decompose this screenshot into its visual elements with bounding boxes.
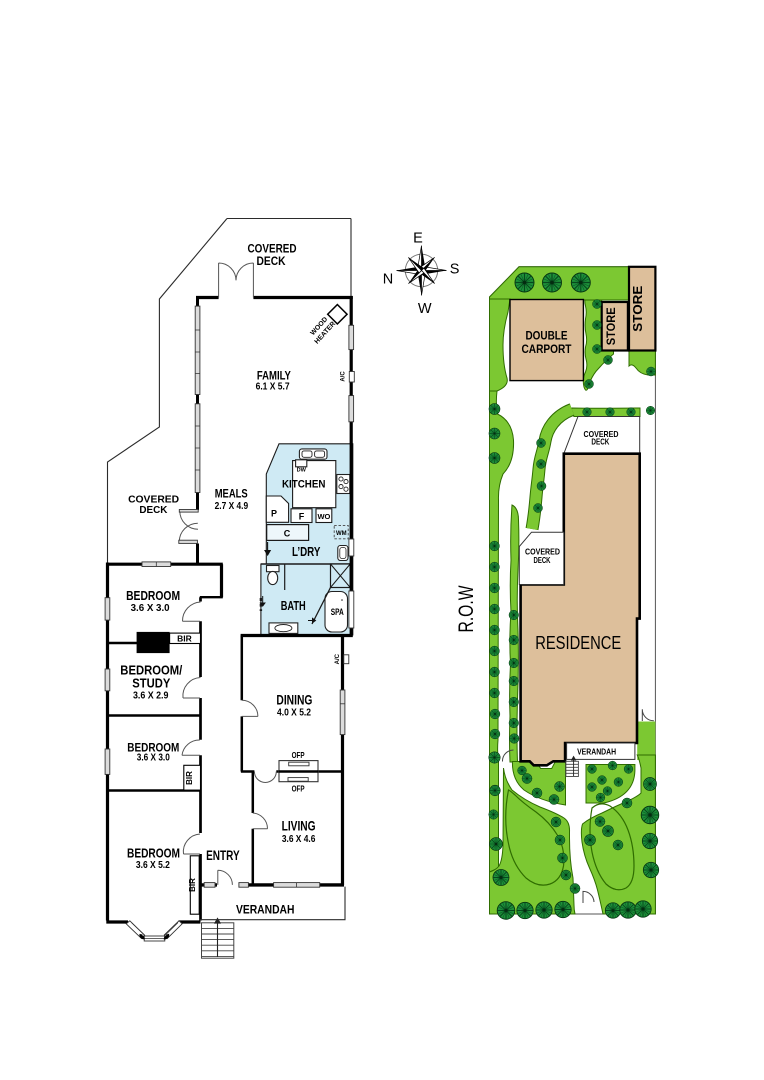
svg-text:4.0 X 5.2: 4.0 X 5.2 (277, 707, 311, 718)
svg-text:OFP: OFP (292, 751, 305, 760)
svg-text:OFP: OFP (292, 784, 305, 793)
svg-text:2.7 X 4.9: 2.7 X 4.9 (215, 501, 249, 512)
svg-text:WO: WO (317, 512, 330, 521)
svg-text:C: C (284, 529, 291, 539)
svg-text:F: F (299, 512, 305, 522)
svg-text:BIR: BIR (188, 878, 197, 892)
svg-text:3.6 X 2.9: 3.6 X 2.9 (133, 690, 169, 701)
svg-text:CARPORT: CARPORT (522, 344, 572, 356)
svg-text:COVERED: COVERED (128, 494, 179, 505)
svg-text:3.6 X 5.2: 3.6 X 5.2 (136, 860, 170, 871)
svg-text:A/C: A/C (335, 653, 341, 664)
svg-text:A/C: A/C (341, 371, 347, 382)
svg-text:STORE: STORE (604, 307, 618, 345)
svg-text:SPA: SPA (331, 607, 344, 617)
svg-text:L’DRY: L’DRY (292, 545, 321, 559)
svg-text:BIR: BIR (177, 634, 192, 644)
svg-text:DW: DW (297, 468, 307, 474)
svg-text:WM: WM (336, 531, 347, 537)
svg-text:N: N (383, 271, 393, 287)
svg-text:P: P (271, 509, 277, 519)
svg-text:E: E (413, 230, 423, 246)
svg-text:DECK: DECK (139, 505, 167, 516)
svg-text:KITCHEN: KITCHEN (282, 479, 326, 491)
svg-text:COVERED: COVERED (248, 243, 297, 256)
svg-text:3.6 X 3.0: 3.6 X 3.0 (137, 752, 170, 763)
svg-text:RESIDENCE: RESIDENCE (535, 633, 621, 653)
svg-text:BEDROOM: BEDROOM (126, 588, 180, 603)
svg-text:FAMILY: FAMILY (257, 368, 292, 382)
svg-text:S: S (450, 261, 460, 277)
svg-text:DINING: DINING (276, 693, 312, 708)
svg-text:BIR: BIR (185, 771, 194, 785)
svg-text:STORE: STORE (630, 285, 645, 331)
svg-text:VERANDAH: VERANDAH (577, 748, 616, 757)
svg-text:3.6 X 3.0: 3.6 X 3.0 (131, 603, 170, 614)
svg-text:DECK: DECK (257, 255, 286, 268)
svg-text:DECK: DECK (591, 438, 609, 447)
svg-text:LIVING: LIVING (282, 819, 316, 834)
svg-text:VERANDAH: VERANDAH (236, 904, 295, 917)
svg-text:3.6 X 4.6: 3.6 X 4.6 (282, 834, 316, 845)
svg-text:MEALS: MEALS (215, 486, 248, 500)
svg-text:DECK: DECK (534, 556, 551, 565)
svg-text:BEDROOM: BEDROOM (127, 847, 180, 861)
svg-text:R.O.W: R.O.W (455, 585, 478, 632)
svg-text:STUDY: STUDY (132, 675, 170, 690)
svg-text:W: W (418, 301, 432, 317)
svg-text:6.1 X 5.7: 6.1 X 5.7 (256, 382, 290, 393)
svg-text:DOUBLE: DOUBLE (526, 331, 568, 343)
svg-text:ENTRY: ENTRY (206, 848, 240, 863)
svg-text:BATH: BATH (281, 598, 306, 613)
